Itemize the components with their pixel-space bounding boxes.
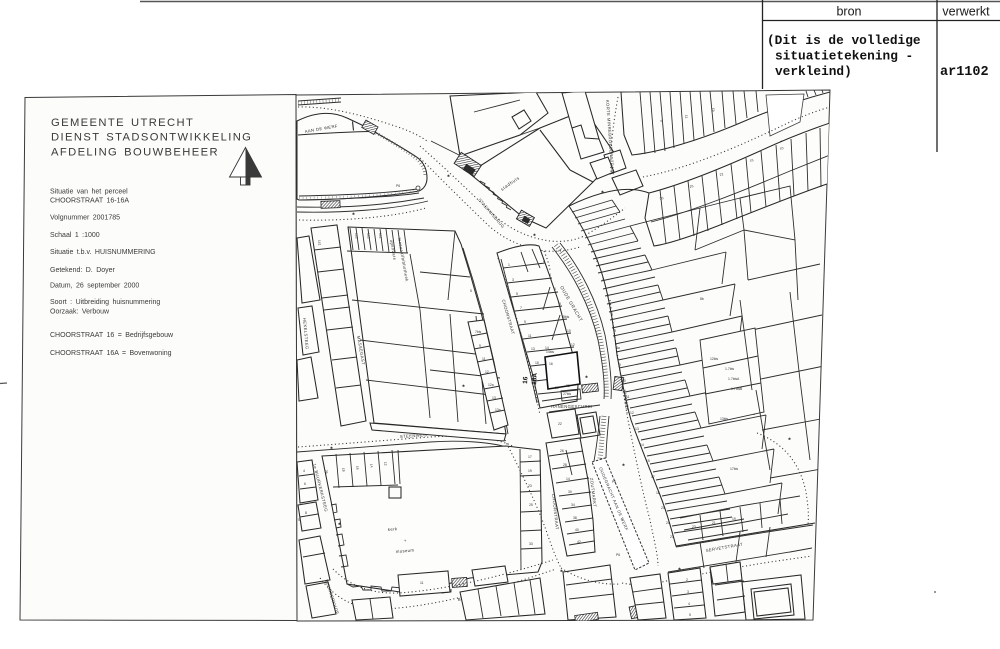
svg-text:28: 28 (563, 463, 567, 467)
svg-text:8: 8 (614, 329, 616, 333)
svg-text:15: 15 (646, 459, 650, 463)
svg-text:12: 12 (485, 370, 489, 374)
svg-text:Datum, 26 september 2000: Datum, 26 september 2000 (50, 283, 139, 290)
svg-text:✱: ✱ (622, 463, 625, 467)
svg-text:17: 17 (651, 475, 655, 479)
svg-text:6: 6 (304, 482, 306, 486)
svg-text:30: 30 (568, 490, 572, 494)
svg-text:4: 4 (549, 273, 551, 277)
svg-text:2: 2 (543, 259, 545, 263)
svg-text:1.7bisB: 1.7bisB (731, 387, 743, 391)
svg-text:1.7bis: 1.7bis (725, 367, 734, 371)
svg-text:11: 11 (482, 357, 486, 361)
svg-text:25: 25 (529, 503, 533, 507)
svg-text:Schaal 1 :1000: Schaal 1 :1000 (50, 232, 100, 239)
svg-text:Situatie van het perceel: Situatie van het perceel (50, 189, 128, 196)
svg-text:verwerkt: verwerkt (942, 5, 990, 19)
svg-text:Soort : Uitbreiding huisnummer: Soort : Uitbreiding huisnummering (50, 299, 160, 306)
svg-text:13: 13 (635, 427, 639, 431)
svg-text:13: 13 (492, 396, 496, 400)
svg-text:23: 23 (692, 525, 696, 529)
svg-text:165: 165 (354, 233, 358, 239)
svg-text:12: 12 (630, 411, 634, 415)
svg-text:DIENST STADSONTWIKKELING: DIENST STADSONTWIKKELING (51, 132, 252, 144)
svg-text:20: 20 (555, 386, 559, 390)
svg-text:19: 19 (732, 517, 736, 521)
svg-text:3: 3 (602, 277, 604, 281)
svg-text:1.7bisA: 1.7bisA (728, 377, 740, 381)
svg-text:9: 9 (479, 344, 481, 348)
svg-text:15: 15 (535, 361, 539, 365)
svg-text:4: 4 (607, 294, 609, 298)
svg-text:11: 11 (626, 395, 630, 399)
svg-text:Oorzaak: Verbouw: Oorzaak: Verbouw (50, 309, 110, 316)
svg-text:Situatie t.b.v. HUISNUMMERING: Situatie t.b.v. HUISNUMMERING (50, 249, 156, 256)
svg-text:kerk: kerk (388, 526, 398, 532)
svg-text:CHOORSTRAAT 16-16A: CHOORSTRAAT 16-16A (50, 198, 129, 205)
svg-text:7bis: 7bis (475, 330, 482, 334)
svg-text:✱: ✱ (678, 567, 681, 571)
svg-text:12: 12 (571, 343, 575, 347)
svg-text:8bis: 8bis (563, 315, 570, 319)
svg-text:16: 16 (549, 362, 553, 366)
svg-text:17bis: 17bis (730, 467, 738, 471)
svg-text:8b: 8b (700, 297, 704, 301)
svg-text:P6: P6 (612, 480, 616, 484)
svg-text:9: 9 (524, 320, 526, 324)
svg-text:17: 17 (528, 455, 532, 459)
svg-text:✱: ✱ (462, 384, 465, 388)
svg-text:14: 14 (566, 477, 570, 481)
svg-text:161: 161 (317, 240, 321, 246)
svg-text:11: 11 (528, 334, 532, 338)
svg-text:5: 5 (516, 292, 518, 296)
svg-text:163: 163 (366, 233, 370, 239)
svg-text:16: 16 (522, 376, 530, 384)
svg-text:42: 42 (577, 540, 581, 544)
svg-text:6: 6 (611, 312, 613, 316)
svg-text:38: 38 (573, 516, 577, 520)
svg-text:33: 33 (529, 542, 533, 546)
svg-text:16A: 16A (531, 372, 539, 385)
svg-text:ar1102: ar1102 (940, 65, 989, 80)
svg-text:23: 23 (670, 535, 674, 539)
svg-text:2: 2 (596, 259, 598, 263)
svg-text:AFDELING BOUWBEHEER: AFDELING BOUWBEHEER (51, 147, 219, 159)
svg-text:3: 3 (512, 278, 514, 282)
svg-text:✱: ✱ (447, 174, 450, 178)
svg-text:5: 5 (689, 613, 691, 617)
svg-text:40: 40 (575, 528, 579, 532)
svg-text:8: 8 (559, 302, 561, 306)
svg-text:situatietekening -: situatietekening - (775, 49, 913, 64)
svg-text:21: 21 (712, 521, 716, 525)
svg-text:P6: P6 (616, 553, 620, 557)
svg-text:6: 6 (554, 287, 556, 291)
svg-text:21: 21 (666, 521, 670, 525)
svg-text:4: 4 (688, 602, 690, 606)
svg-text:20: 20 (661, 506, 665, 510)
svg-text:14: 14 (640, 443, 644, 447)
svg-text:8: 8 (305, 511, 307, 515)
svg-text:22: 22 (558, 422, 562, 426)
svg-text:2: 2 (686, 578, 688, 582)
svg-text:GEMEENTE UTRECHT: GEMEENTE UTRECHT (51, 117, 194, 129)
svg-text:1: 1 (508, 263, 510, 267)
svg-text:3: 3 (687, 590, 689, 594)
svg-text:14bis: 14bis (546, 350, 554, 354)
svg-text:8a: 8a (616, 346, 620, 350)
svg-text:✱: ✱ (533, 233, 536, 237)
svg-text:18: 18 (656, 491, 660, 495)
svg-text:✱: ✱ (330, 446, 333, 450)
svg-text:✱: ✱ (585, 375, 588, 379)
svg-text:HANENGESCHREI: HANENGESCHREI (551, 404, 593, 409)
svg-text:✱: ✱ (788, 437, 791, 441)
svg-text:12a: 12a (488, 383, 494, 387)
svg-text:CHOORSTRAAT 16 = Bedrijfsge: CHOORSTRAAT 16 = Bedrijfsgebouw (50, 332, 174, 339)
svg-text:bron: bron (836, 5, 861, 19)
svg-text:10: 10 (567, 329, 571, 333)
svg-text:19: 19 (528, 469, 532, 473)
svg-text:Volgnummer 2001785: Volgnummer 2001785 (50, 215, 120, 222)
svg-text:+: + (404, 538, 407, 543)
svg-text:27bis: 27bis (563, 392, 571, 396)
svg-text:5: 5 (470, 289, 472, 293)
svg-text:13: 13 (531, 347, 535, 351)
svg-text:✱: ✱ (352, 212, 355, 216)
svg-text:4: 4 (303, 469, 305, 473)
svg-text:34: 34 (571, 503, 575, 507)
svg-text:9: 9 (619, 363, 621, 367)
svg-text:Getekend: D. Doyer: Getekend: D. Doyer (50, 267, 116, 274)
svg-text:23: 23 (528, 484, 532, 488)
svg-text:25: 25 (566, 384, 570, 388)
svg-text:verkleind): verkleind) (775, 64, 852, 79)
svg-text:(Dit is de volledige: (Dit is de volledige (767, 33, 921, 48)
svg-text:12bis: 12bis (710, 357, 718, 361)
svg-text:11: 11 (420, 581, 424, 585)
svg-text:161: 161 (378, 233, 382, 239)
svg-text:13bis: 13bis (720, 417, 728, 421)
svg-text:✱: ✱ (338, 522, 341, 526)
svg-text:13a: 13a (495, 408, 501, 412)
svg-text:CHOORSTRAAT 16A = Bovenwoning: CHOORSTRAAT 16A = Bovenwoning (50, 350, 172, 357)
svg-text:26: 26 (560, 449, 564, 453)
svg-text:7: 7 (520, 306, 522, 310)
svg-text:10: 10 (622, 379, 626, 383)
svg-text:P6: P6 (396, 184, 400, 188)
